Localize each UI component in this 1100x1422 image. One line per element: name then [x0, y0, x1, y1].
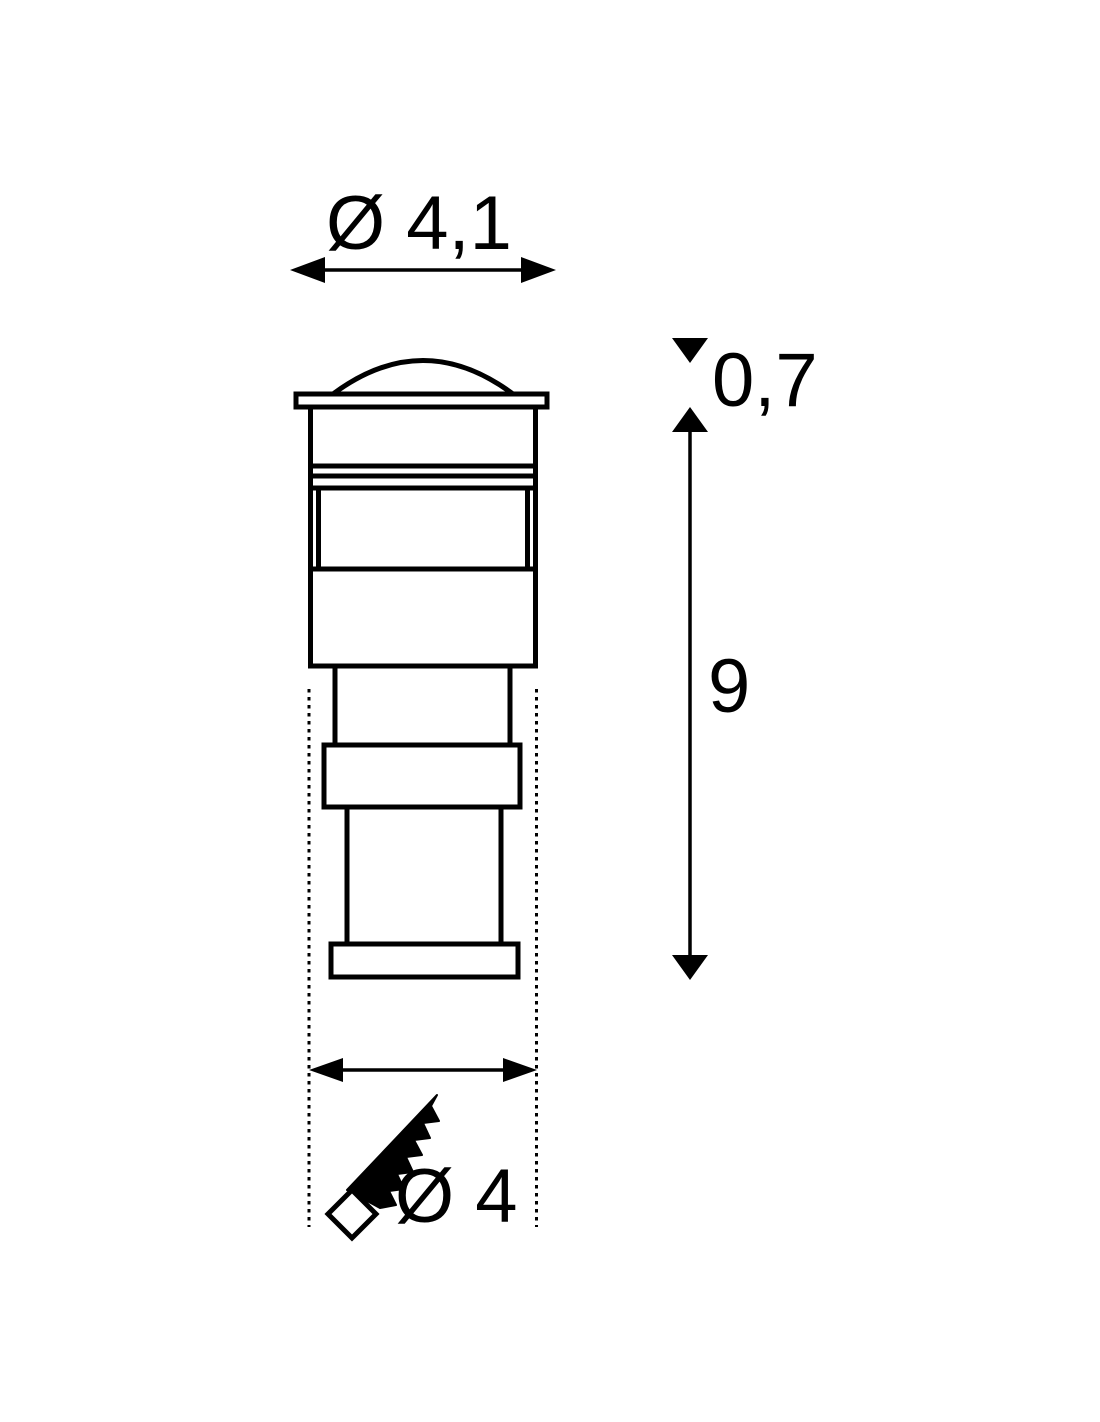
technical-drawing-page: Ø 4,1 0,7 9 Ø 4: [0, 0, 1100, 1422]
fixture-bottom-cap: [331, 944, 518, 977]
fixture-body: [311, 402, 536, 666]
arrowhead-left-icon: [309, 1058, 343, 1082]
arrowhead-right-icon: [521, 257, 556, 283]
bottom-diameter-label: Ø 4: [395, 1159, 518, 1235]
recessed-depth-label: 9: [708, 649, 750, 725]
luminaire-dimension-drawing: [0, 0, 1100, 1422]
fixture-collar-block: [324, 745, 520, 807]
arrowhead-up-icon: [672, 407, 708, 432]
arrowhead-left-icon: [290, 257, 325, 283]
arrowhead-down-icon: [672, 338, 708, 363]
top-diameter-label: Ø 4,1: [326, 186, 512, 262]
fixture-dome-lens: [333, 361, 513, 395]
recessed-depth-arrow: [672, 407, 708, 980]
bottom-diameter-arrow: [309, 1058, 537, 1082]
arrowhead-right-icon: [503, 1058, 537, 1082]
protrusion-height-arrow: [672, 338, 708, 363]
arrowhead-down-icon: [672, 955, 708, 980]
protrusion-height-label: 0,7: [712, 343, 818, 419]
fixture-top-flange: [296, 394, 547, 407]
